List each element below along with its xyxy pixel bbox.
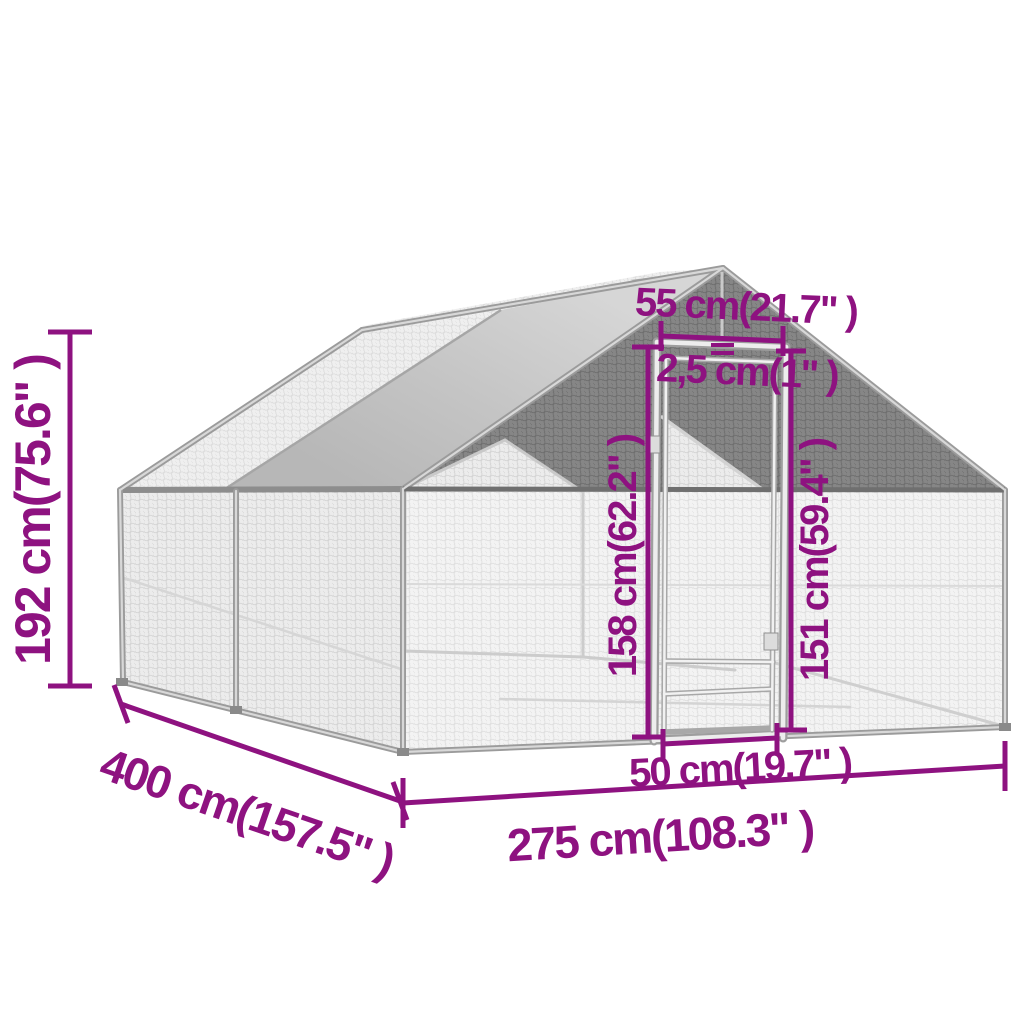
door-hinge-bottom xyxy=(764,633,778,650)
label-width: 275 cm(108.3" ) xyxy=(506,801,816,872)
chicken-cage-diagram: 192 cm(75.6" ) 400 cm(157.5" ) 275 cm(10… xyxy=(0,0,1024,1024)
front-wall-mesh xyxy=(403,489,1005,752)
label-door-height: 158 cm(62.2" ) xyxy=(601,434,645,677)
cage-structure xyxy=(116,268,1011,756)
left-wall-mesh xyxy=(120,489,403,752)
label-tube-diameter: 2,5 cm(1" ) xyxy=(655,346,839,398)
label-overall-height: 192 cm(75.6" ) xyxy=(5,355,61,665)
product-dimension-image: 192 cm(75.6" ) 400 cm(157.5" ) 275 cm(10… xyxy=(0,0,1024,1024)
label-depth: 400 cm(157.5" ) xyxy=(94,738,401,887)
label-door-inner-height: 151 cm(59.4" ) xyxy=(793,438,837,681)
front-eave-rail xyxy=(403,489,1005,490)
